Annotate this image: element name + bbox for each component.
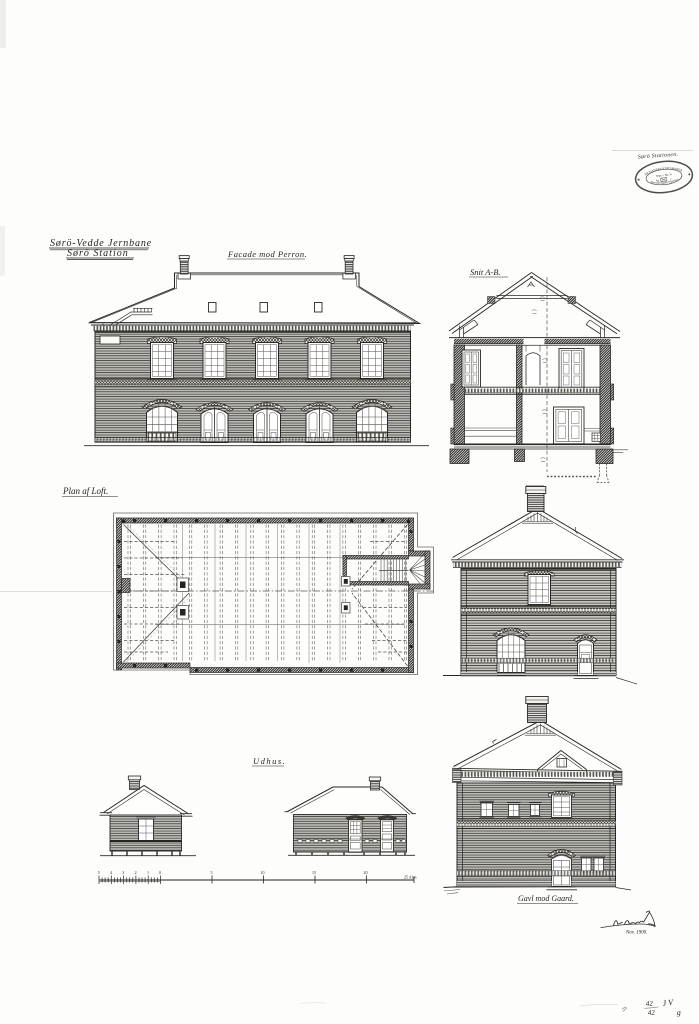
svg-text:Plan af Loft.: Plan af Loft. (62, 486, 108, 496)
svg-text:No.: No. (656, 179, 661, 182)
svg-text:20: 20 (364, 870, 368, 875)
svg-text:15: 15 (312, 870, 316, 875)
svg-text:2: 2 (135, 870, 137, 875)
svg-text:5: 5 (98, 870, 100, 875)
svg-text:Gavl mod Gaard.: Gavl mod Gaard. (518, 894, 574, 903)
svg-text:Sørö Station: Sørö Station (67, 248, 129, 259)
svg-text:Snit A-B.: Snit A-B. (470, 267, 501, 277)
svg-text:4: 4 (110, 870, 112, 875)
svg-text:5: 5 (211, 870, 213, 875)
svg-text:42: 42 (645, 999, 653, 1008)
svg-text:Nov. 1900.: Nov. 1900. (625, 931, 647, 936)
svg-text:10: 10 (261, 870, 265, 875)
svg-text:0: 0 (159, 870, 161, 875)
svg-text:25 Alen: 25 Alen (404, 875, 417, 880)
svg-text:42: 42 (647, 1008, 655, 1017)
svg-text:Facade mod Perron.: Facade mod Perron. (227, 249, 307, 259)
svg-text:1: 1 (147, 870, 149, 875)
svg-text:Udhus.: Udhus. (253, 756, 286, 766)
svg-text:3: 3 (122, 870, 124, 875)
